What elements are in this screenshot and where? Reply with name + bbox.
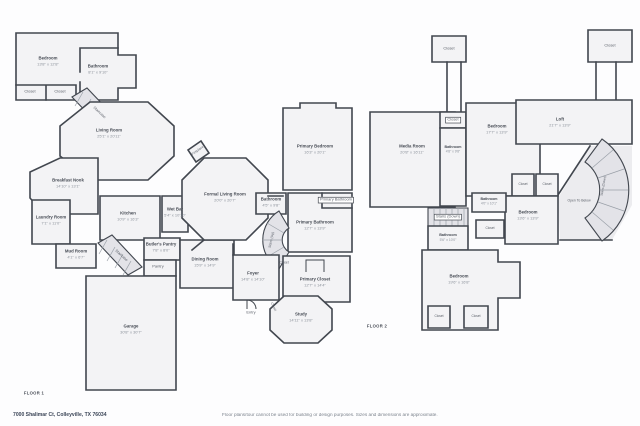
room-label-bathroom-hall: Bathroom 4'5" x 9'8" xyxy=(261,198,281,209)
property-address: 7000 Shalimar Ct, Colleyville, TX 76034 xyxy=(13,412,107,417)
room-dims: 12'7" x 13'9" xyxy=(296,226,334,231)
room-label-breakfast-nook: Breakfast Nook 14'10" x 13'1" xyxy=(52,179,84,190)
room-name: Bathroom xyxy=(261,198,281,202)
room-dims: 4'1" x 6'7" xyxy=(65,255,87,260)
room-label-kitchen: Kitchen 10'9" x 16'3" xyxy=(117,212,139,223)
room-label-primary-bathroom-small: Primary Bathroom xyxy=(318,197,354,203)
room-label-open-to-below: Open To Below xyxy=(567,199,590,203)
room-dims: 25'1" x 20'11" xyxy=(96,134,122,139)
room-label-study: Study 14'11" x 13'8" xyxy=(289,313,313,324)
room-label-bathroom: Bathroom 4'0" x 10'1" xyxy=(480,198,497,207)
room-dims: 30'8" x 30'7" xyxy=(120,330,142,335)
room-name: Kitchen xyxy=(120,212,136,216)
room-label-dining-room: Dining Room 15'9" x 14'9" xyxy=(192,258,219,269)
floor2-bathroom-1-outline xyxy=(440,128,466,206)
room-name: Bedroom xyxy=(519,211,538,215)
room-name: Bathroom xyxy=(480,198,497,202)
floor2-tag: FLOOR 2 xyxy=(367,325,387,329)
room-dims: 20'8" x 16'11" xyxy=(399,150,425,155)
room-label-mud-room: Mud Room 4'1" x 6'7" xyxy=(65,250,87,261)
room-label-pantry: Pantry xyxy=(152,264,163,269)
room-dims: 21'7" x 13'9" xyxy=(549,123,571,128)
room-label-closet: Closet xyxy=(604,43,615,48)
room-label-bathroom: Bathroom 5'6" x 10'0" xyxy=(439,233,457,242)
entry-door-swing-icon xyxy=(247,300,256,309)
room-name: Loft xyxy=(556,118,564,122)
room-name: Breakfast Nook xyxy=(52,179,84,183)
room-name: Butler's Pantry xyxy=(146,243,177,247)
room-name: Dining Room xyxy=(192,258,219,262)
room-label-garage: Garage 30'8" x 30'7" xyxy=(120,325,142,336)
room-label-bedroom: Bedroom 19'6" x 16'8" xyxy=(448,275,470,286)
room-name: Laundry Room xyxy=(36,216,66,220)
room-dims: 15'9" x 14'9" xyxy=(192,263,219,268)
room-dims: 4'5" x 9'8" xyxy=(261,203,281,208)
room-label-closet: Closet xyxy=(24,89,35,94)
room-label-loft: Loft 21'7" x 13'9" xyxy=(549,118,571,129)
room-label-closet: Closet xyxy=(279,261,288,265)
disclaimer-text: Floor plans/tour cannot be used for buil… xyxy=(222,413,438,418)
room-label-formal-living-room: Formal Living Room 20'0" x 20'7" xyxy=(204,193,246,204)
room-name: Bedroom xyxy=(39,57,58,61)
room-name: Wet Bar xyxy=(167,208,183,212)
room-dims: 4'8" x 9'8" xyxy=(444,150,461,154)
room-name: Primary Closet xyxy=(300,278,330,282)
floor1-tag: FLOOR 1 xyxy=(24,392,44,396)
room-label-bedroom: Bedroom 17'7" x 13'9" xyxy=(486,125,508,136)
room-label-closet: Closet xyxy=(434,315,443,319)
room-label-closet: Closet xyxy=(542,183,551,187)
room-label-media-room: Media Room 20'8" x 16'11" xyxy=(399,145,425,156)
room-dims: 4'0" x 10'1" xyxy=(480,202,497,206)
room-dims: 8'1" x 9'10" xyxy=(88,70,108,75)
room-name: Bedroom xyxy=(488,125,507,129)
room-dims: 19'6" x 16'8" xyxy=(448,280,470,285)
room-label-laundry-room: Laundry Room 7'1" x 11'0" xyxy=(36,216,66,227)
room-dims: 14'8" x 14'10" xyxy=(241,277,265,282)
room-label-closet: Closet xyxy=(54,89,65,94)
room-label-wet-bar: Wet Bar 5'4" x 10'10" xyxy=(164,208,186,219)
room-dims: 10'9" x 16'3" xyxy=(117,217,139,222)
floorplan-page: Bedroom 13'8" x 12'8" Bathroom 8'1" x 9'… xyxy=(0,0,640,426)
room-label-closet: Closet xyxy=(443,46,454,51)
room-dims: 5'4" x 10'10" xyxy=(164,213,186,218)
room-label-primary-bathroom: Primary Bathroom 12'7" x 13'9" xyxy=(296,221,334,232)
room-name: Garage xyxy=(124,325,139,329)
room-dims: 16'3" x 20'1" xyxy=(297,150,333,155)
room-label-bedroom: Bedroom 13'8" x 12'8" xyxy=(37,57,59,68)
room-label-living-room: Living Room 25'1" x 20'11" xyxy=(96,129,122,140)
room-dims: 14'10" x 13'1" xyxy=(52,184,84,189)
room-dims: 5'6" x 10'0" xyxy=(439,238,457,242)
room-dims: 20'0" x 20'7" xyxy=(204,198,246,203)
room-dims: 14'11" x 13'8" xyxy=(289,318,313,323)
room-label-foyer: Foyer 14'8" x 14'10" xyxy=(241,272,265,283)
room-name: Primary Bathroom xyxy=(296,221,334,225)
room-dims: 13'6" x 13'9" xyxy=(517,216,539,221)
room-label-entry: Entry xyxy=(246,310,255,315)
room-label-butlers-pantry: Butler's Pantry 7'8" x 8'0" xyxy=(146,243,177,254)
room-dims: 7'1" x 11'0" xyxy=(36,221,66,226)
room-label-bathroom: Bathroom 4'8" x 9'8" xyxy=(444,146,461,155)
room-dims: 13'8" x 12'8" xyxy=(37,62,59,67)
room-name: Bathroom xyxy=(444,146,461,150)
room-dims: 7'8" x 8'0" xyxy=(146,248,177,253)
room-label-closet: Closet xyxy=(485,227,494,231)
room-name: Bathroom xyxy=(88,65,108,69)
room-label-bedroom: Bedroom 13'6" x 13'9" xyxy=(517,211,539,222)
room-dims: 12'7" x 14'4" xyxy=(300,283,330,288)
room-label-stairs-down-straight: Stairs (Down) xyxy=(434,214,462,220)
room-name: Living Room xyxy=(96,129,122,133)
room-name: Bathroom xyxy=(439,233,457,237)
room-name: Media Room xyxy=(399,145,425,149)
room-label-bathroom: Bathroom 8'1" x 9'10" xyxy=(88,65,108,76)
room-name: Foyer xyxy=(247,272,259,276)
room-name: Formal Living Room xyxy=(204,193,246,197)
room-name: Mud Room xyxy=(65,250,87,254)
room-label-closet: Closet xyxy=(445,117,461,123)
room-label-closet: Closet xyxy=(471,315,480,319)
floor2-plan xyxy=(370,30,632,330)
room-name: Primary Bedroom xyxy=(297,145,333,149)
room-label-closet: Closet xyxy=(518,183,527,187)
room-name: Study xyxy=(295,313,307,317)
room-name: Bedroom xyxy=(450,275,469,279)
room-dims: 17'7" x 13'9" xyxy=(486,130,508,135)
loft-outline xyxy=(516,100,632,144)
room-label-primary-bedroom: Primary Bedroom 16'3" x 20'1" xyxy=(297,145,333,156)
room-label-primary-closet: Primary Closet 12'7" x 14'4" xyxy=(300,278,330,289)
